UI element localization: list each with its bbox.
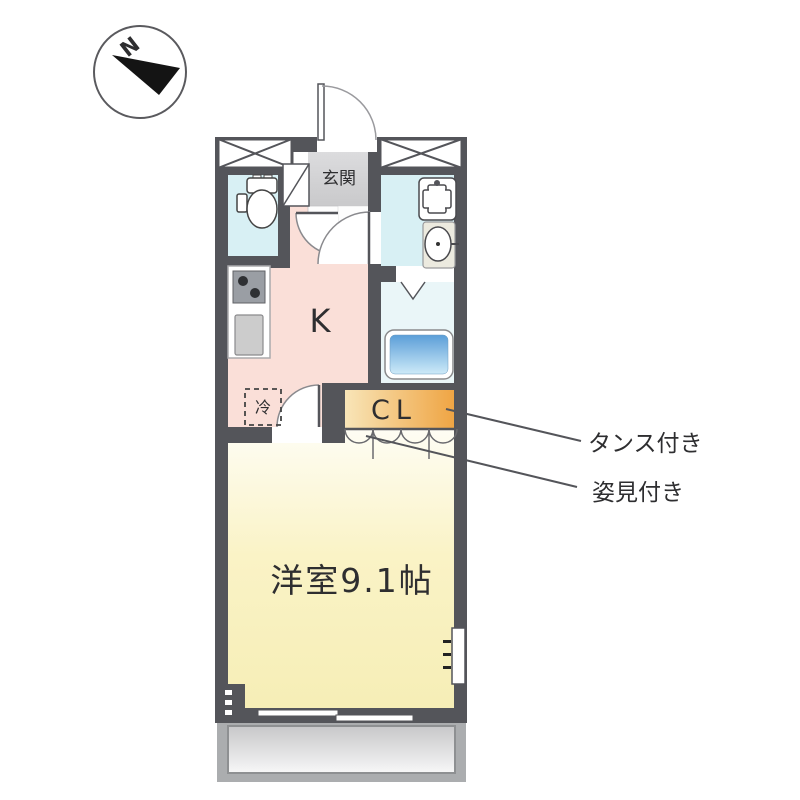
- wall-closet-north: [345, 383, 467, 390]
- entrance-door-leaf: [318, 84, 324, 140]
- toilet-door: [283, 164, 309, 206]
- door-opening: [272, 427, 322, 443]
- kitchen-counter: [228, 266, 270, 358]
- closet-label: CL: [371, 395, 417, 426]
- entrance-label: 玄関: [322, 169, 356, 189]
- entrance-door-arc: [322, 86, 376, 140]
- kitchen-label: K: [310, 302, 332, 340]
- fridge-label: 冷: [255, 398, 271, 417]
- entrance-opening: [317, 137, 377, 152]
- ps-box-right: [380, 139, 462, 168]
- floorplan-canvas: N: [0, 0, 800, 800]
- bathtub-icon: [385, 330, 453, 379]
- washing-machine-icon: [419, 178, 456, 220]
- compass: N: [94, 26, 186, 118]
- floorplan-svg: N: [0, 0, 800, 800]
- balcony-floor: [228, 726, 455, 773]
- western-room-label: 洋室9.1帖: [270, 561, 433, 600]
- balcony: [217, 723, 466, 782]
- annotation-tansu: タンス付き: [588, 431, 703, 457]
- ps-box-left: [218, 139, 292, 168]
- wall-hall-east-lower: [368, 264, 381, 390]
- entrance-door: [317, 84, 377, 152]
- window-left: [225, 690, 232, 715]
- wall-bath-divider: [381, 266, 396, 282]
- wall-kitchen-south-left: [215, 427, 272, 443]
- annotation-sugatami: 姿見付き: [592, 480, 684, 506]
- washbasin-icon: [423, 222, 459, 268]
- wall-kitchen-south-right: [322, 383, 345, 443]
- sink-icon: [235, 315, 263, 355]
- stove-icon: [233, 271, 265, 303]
